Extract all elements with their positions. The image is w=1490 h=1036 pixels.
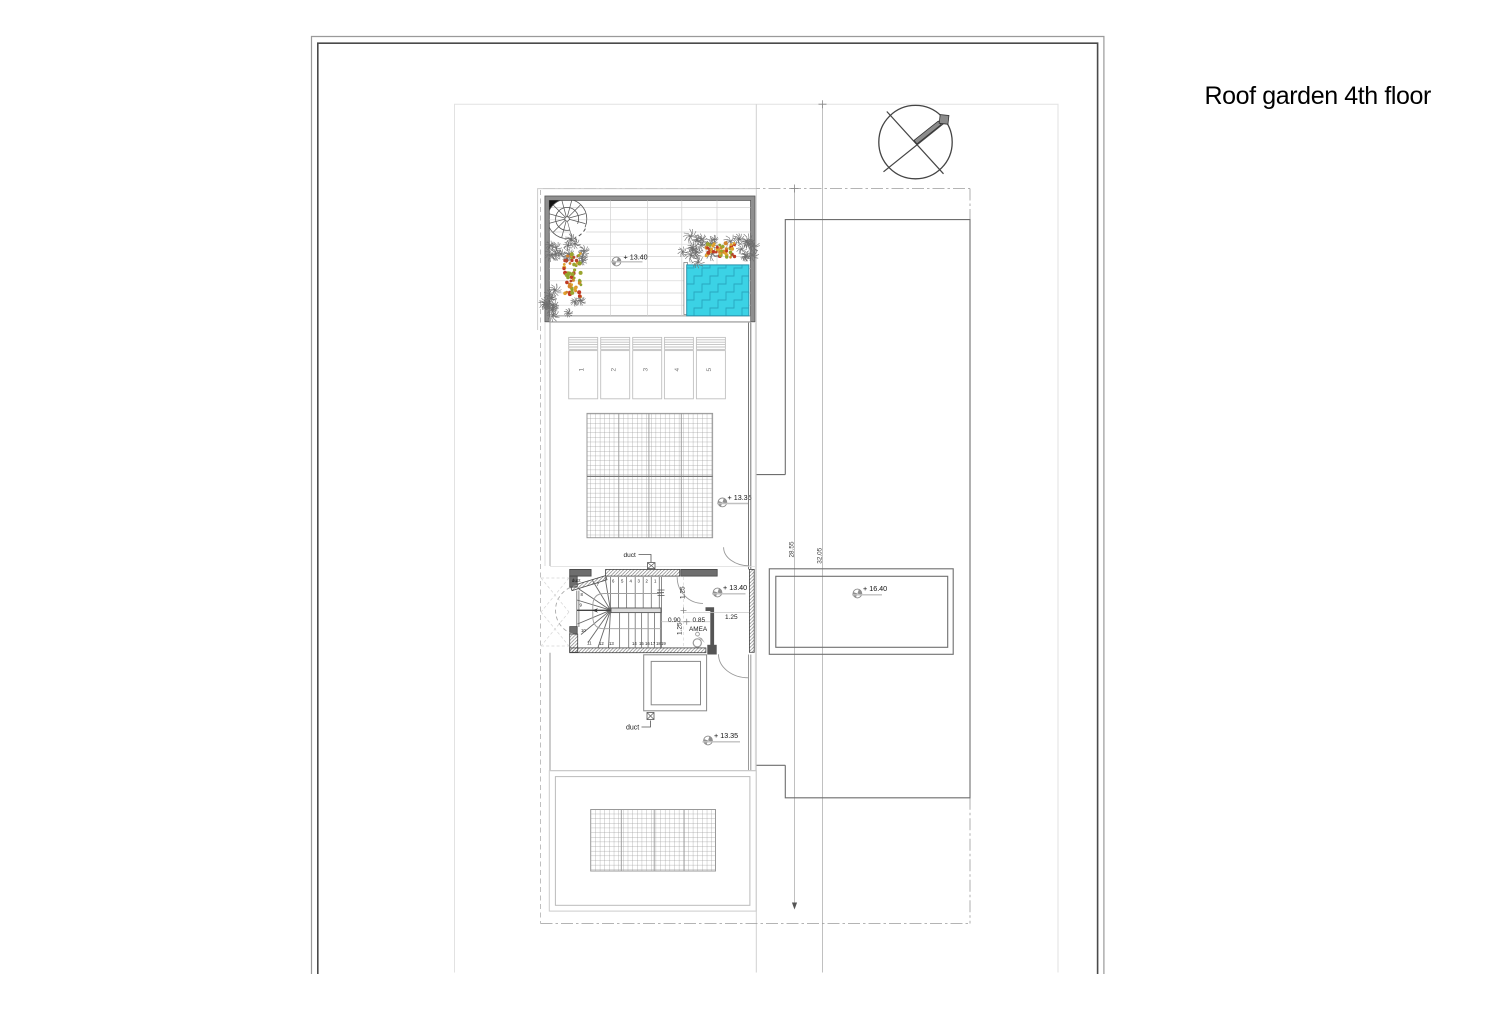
svg-text:15: 15 xyxy=(639,641,644,646)
svg-text:13: 13 xyxy=(609,641,614,646)
svg-text:2: 2 xyxy=(611,368,618,372)
svg-text:+ 16.40: + 16.40 xyxy=(863,584,887,593)
svg-text:1: 1 xyxy=(579,368,586,372)
svg-text:28.55: 28.55 xyxy=(788,541,795,557)
svg-text:10: 10 xyxy=(581,628,586,633)
svg-text:duct: duct xyxy=(624,552,636,559)
svg-text:+ 13.40: + 13.40 xyxy=(624,253,648,262)
svg-text:32.05: 32.05 xyxy=(816,547,823,563)
svg-text:3: 3 xyxy=(638,579,641,584)
svg-text:6: 6 xyxy=(612,579,615,584)
svg-text:7: 7 xyxy=(597,582,600,587)
svg-text:1.25: 1.25 xyxy=(680,586,687,599)
svg-text:14: 14 xyxy=(632,641,637,646)
svg-text:duct: duct xyxy=(572,578,581,583)
svg-text:12: 12 xyxy=(599,641,604,646)
svg-text:19: 19 xyxy=(661,641,666,646)
svg-text:1.25: 1.25 xyxy=(725,614,738,621)
svg-text:11: 11 xyxy=(587,641,592,646)
svg-text:8: 8 xyxy=(581,592,584,597)
svg-text:9: 9 xyxy=(580,603,583,608)
svg-text:2: 2 xyxy=(646,579,649,584)
svg-text:1.25: 1.25 xyxy=(677,622,684,635)
svg-text:4: 4 xyxy=(630,579,633,584)
svg-text:duct: duct xyxy=(626,725,639,732)
svg-text:4: 4 xyxy=(674,368,681,372)
svg-text:0.85: 0.85 xyxy=(693,617,706,624)
svg-text:Roof garden 4th floor: Roof garden 4th floor xyxy=(1205,82,1432,110)
svg-text:+ 13.40: + 13.40 xyxy=(723,583,747,592)
svg-text:AMEA: AMEA xyxy=(689,626,708,633)
svg-text:5: 5 xyxy=(706,368,713,372)
svg-text:5: 5 xyxy=(621,579,624,584)
svg-text:1: 1 xyxy=(654,579,657,584)
svg-text:3: 3 xyxy=(643,368,650,372)
svg-text:+ 13.35: + 13.35 xyxy=(714,731,738,740)
